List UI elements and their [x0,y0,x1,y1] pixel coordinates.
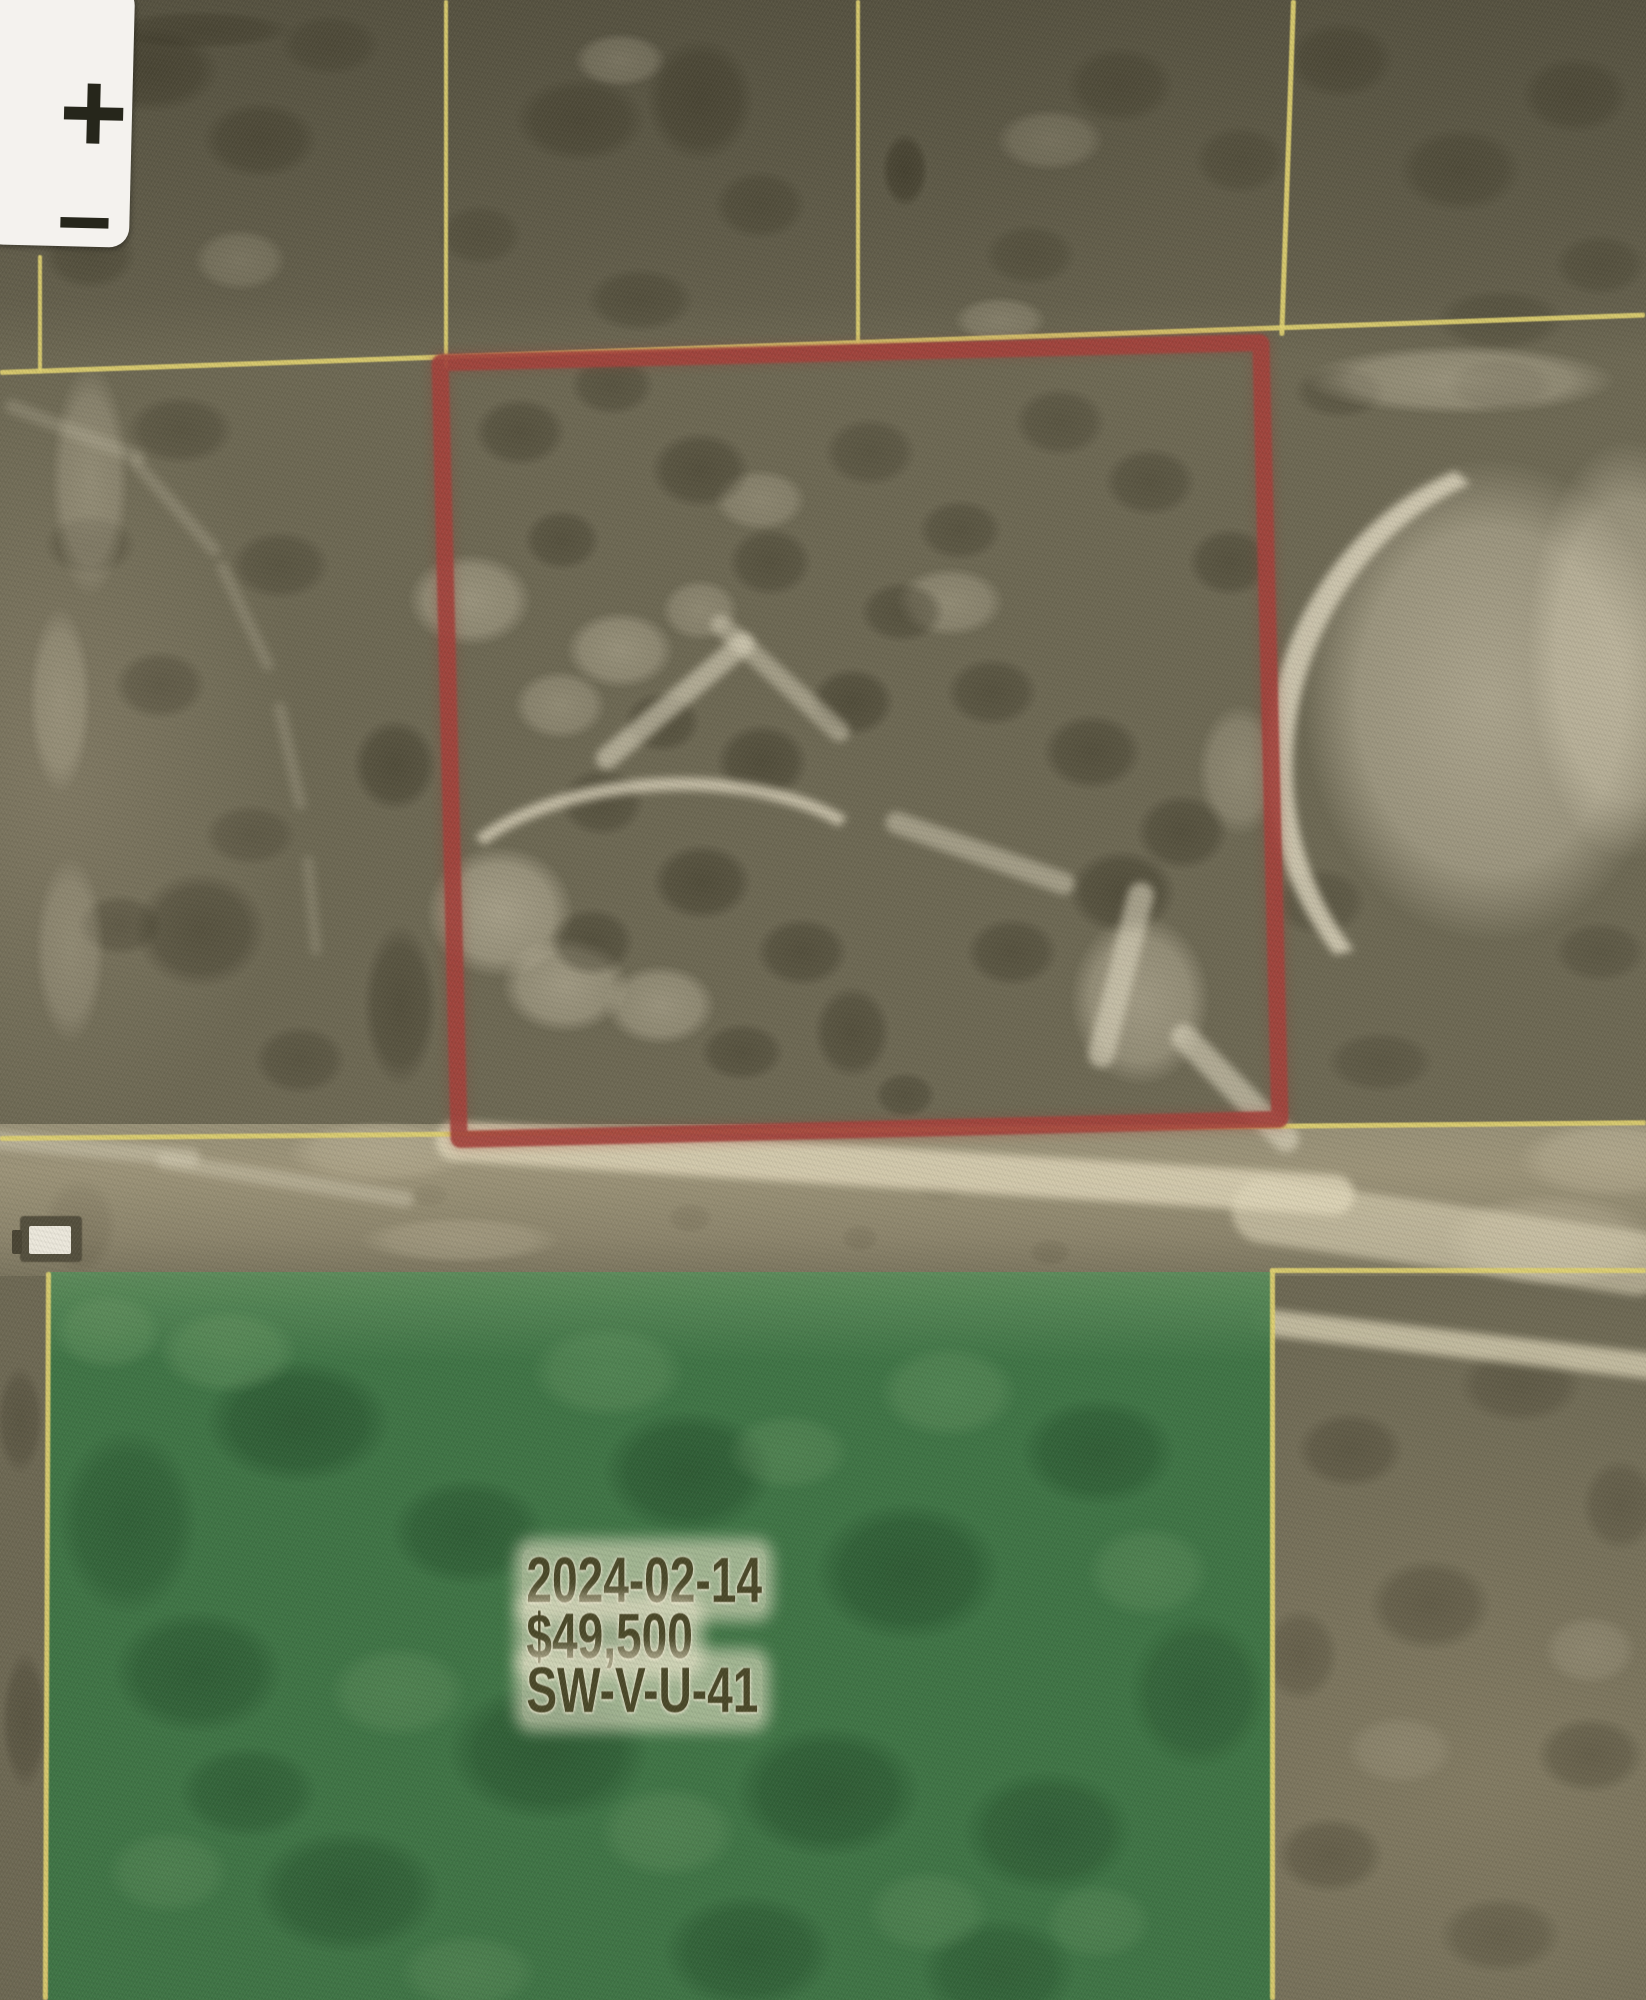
sold-label-code: SW-V-U-41 [522,1658,763,1722]
zoom-control: + − [0,0,135,248]
parcel-line-vertical-1 [444,0,448,368]
minus-icon: − [55,162,114,283]
sold-parcel-border-right [1270,1270,1275,2000]
sold-parcel-border-top-east [1270,1268,1646,1273]
zoom-out-button[interactable]: − [0,100,132,224]
map-canvas[interactable]: 2024-02-14 $49,500 SW-V-U-41 + − [0,0,1646,2000]
building-roof [29,1226,71,1254]
parcel-line-vertical-2 [856,0,860,345]
selected-parcel-outline[interactable] [431,334,1288,1148]
building-shadow [12,1230,22,1254]
zoom-in-button[interactable]: + [0,0,135,114]
parcel-line-vertical-left [38,255,42,373]
